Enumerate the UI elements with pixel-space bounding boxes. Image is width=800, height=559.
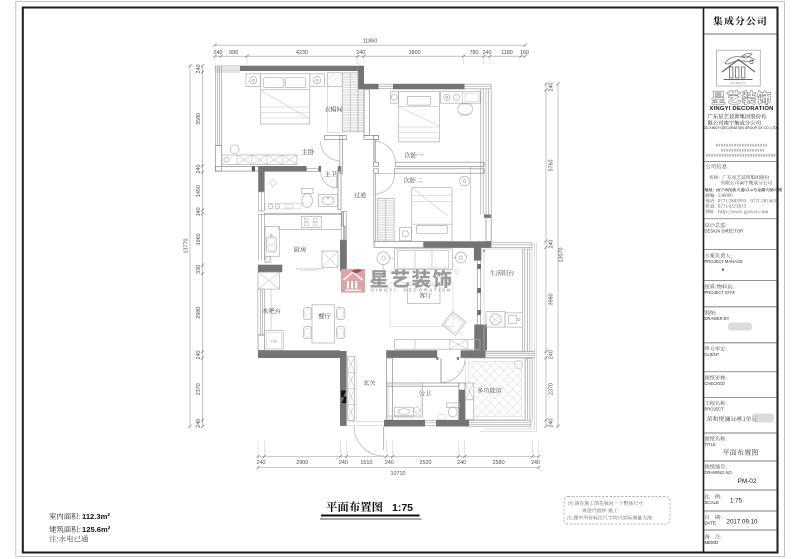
svg-text:XINGYI DECORATION: XINGYI DECORATION [371,288,452,293]
svg-text:2520: 2520 [420,460,432,466]
svg-text:DRAWER BY: DRAWER BY [705,316,730,321]
svg-text:PROJECT MANAGE: PROJECT MANAGE [705,259,744,264]
svg-text:240: 240 [196,64,202,73]
svg-text:240: 240 [549,419,555,428]
svg-text:240: 240 [339,460,348,466]
svg-text:3980: 3980 [549,293,555,305]
svg-text:240: 240 [483,50,492,56]
svg-text:DATE: DATE [705,520,716,525]
svg-text:240: 240 [549,240,555,249]
svg-text:CHECKED: CHECKED [705,381,725,386]
svg-text:1:75: 1:75 [392,502,413,514]
svg-text:2017.09.10: 2017.09.10 [727,519,759,526]
svg-text:3580: 3580 [196,113,202,125]
svg-text:1510: 1510 [360,460,372,466]
svg-text:X I N G Y I: X I N G Y I [731,81,745,85]
svg-text:240: 240 [385,460,394,466]
svg-text:DRAWING NO.: DRAWING NO. [705,470,733,475]
svg-text:160: 160 [520,50,529,56]
svg-text:SCALE: SCALE [705,500,719,505]
svg-text:140: 140 [196,207,202,216]
svg-text:CLIENT: CLIENT [705,352,720,357]
svg-text:240: 240 [356,50,365,56]
svg-text:XINGYI DECORATION: XINGYI DECORATION [709,106,773,112]
svg-text:240: 240 [531,460,540,466]
svg-text:PROJECT STAF: PROJECT STAF [705,290,736,295]
svg-text:990: 990 [229,50,238,56]
svg-text:DESIGN DIRECTOR: DESIGN DIRECTOR [705,228,744,233]
svg-text:3800: 3800 [409,50,421,56]
svg-text:PROJECT: PROJECT [705,406,725,411]
svg-text:PM-02: PM-02 [738,478,757,485]
svg-text:240: 240 [196,351,202,360]
svg-text:2370: 2370 [549,383,555,395]
svg-text:4230: 4230 [296,50,308,56]
svg-text:330: 330 [196,265,202,274]
svg-text:MEMO: MEMO [705,540,719,545]
svg-text:11860: 11860 [363,39,378,45]
svg-text:TITLE: TITLE [705,442,717,447]
svg-text:240: 240 [549,83,555,92]
svg-text:2900: 2900 [296,460,308,466]
svg-text:240: 240 [257,460,266,466]
svg-text:1450: 1450 [196,185,202,197]
svg-text:240: 240 [196,165,202,174]
svg-text:240: 240 [549,350,555,359]
svg-text:2580: 2580 [493,460,505,466]
svg-text:13770: 13770 [184,239,190,254]
svg-text:240: 240 [214,50,223,56]
svg-text:125.6m²: 125.6m² [82,525,111,534]
svg-text:1:75: 1:75 [730,498,743,505]
svg-text:GD.XINGYI DECORATION GROUP GX: GD.XINGYI DECORATION GROUP GX CO.,LTD. [704,126,778,130]
svg-text:780: 780 [470,50,479,56]
svg-text:10710: 10710 [391,471,406,477]
svg-text:2370: 2370 [196,383,202,395]
svg-text:1960: 1960 [196,233,202,245]
svg-text:13070: 13070 [559,248,565,263]
svg-text:5760: 5760 [549,160,555,172]
svg-text:240: 240 [196,419,202,428]
svg-text:112.3m²: 112.3m² [82,512,110,521]
svg-text:2980: 2980 [196,307,202,319]
svg-text:1180: 1180 [501,50,513,56]
svg-text:240: 240 [457,460,466,466]
